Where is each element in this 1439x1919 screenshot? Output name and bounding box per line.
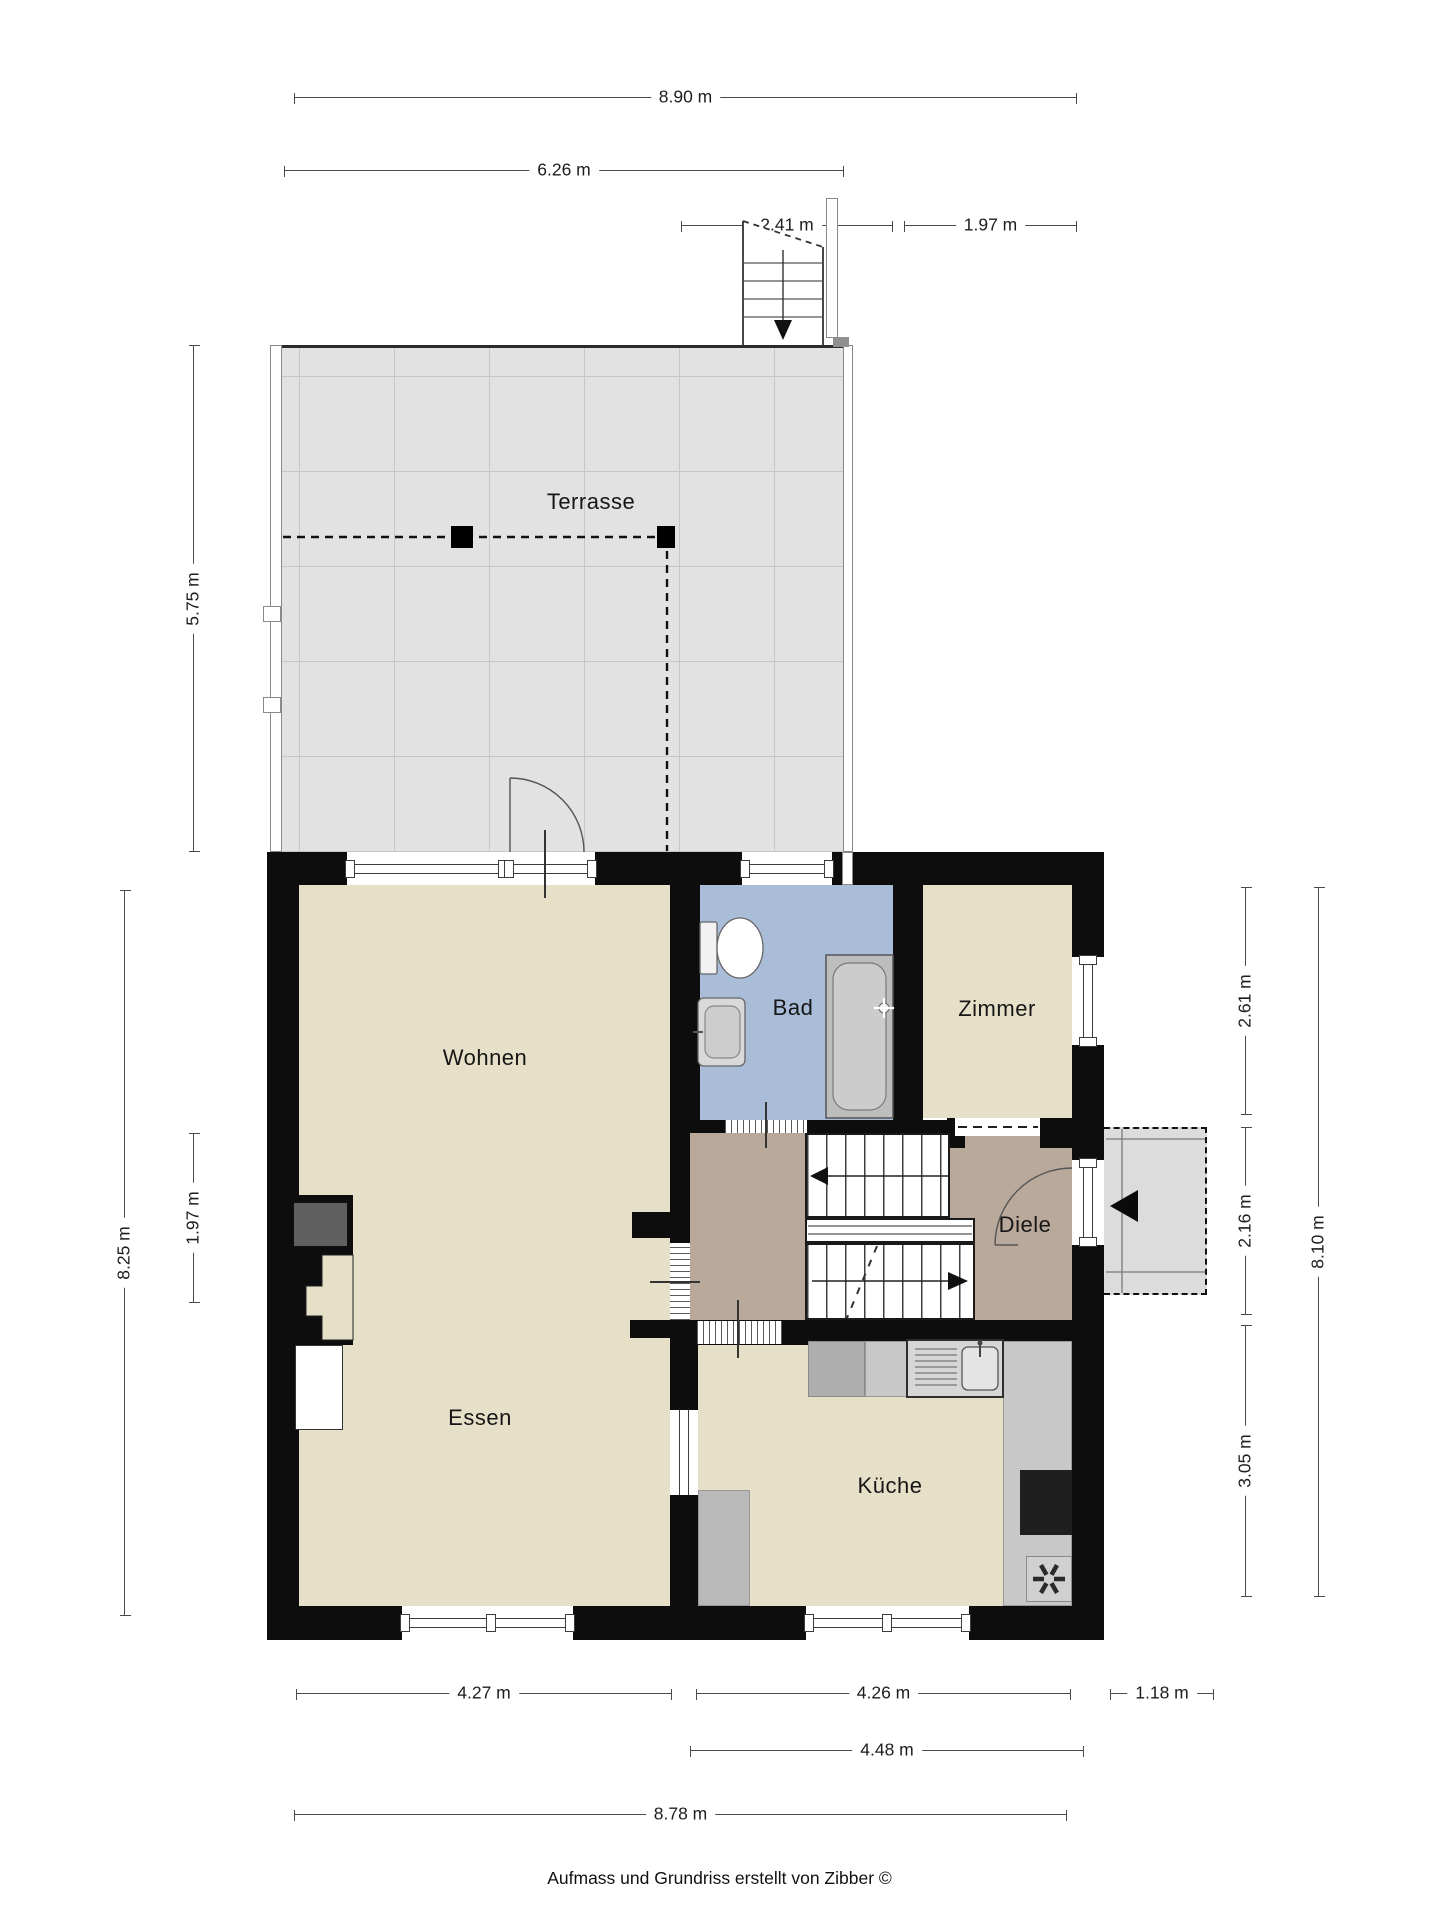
dim-top-terrace-label: 6.26 m: [529, 160, 599, 181]
wall-essen-hall: [670, 1132, 690, 1243]
wall-bottom: [267, 1606, 1104, 1640]
terrace-floor: [282, 345, 843, 852]
dim-top-overall: 8.90 m: [294, 97, 1077, 98]
dim-right-house-label: 8.10 m: [1308, 1207, 1329, 1277]
dim-left-terrace: 5.75 m: [193, 345, 194, 852]
dim-bottom-house-label: 8.78 m: [646, 1804, 716, 1825]
dim-bottom-kitchen-total-label: 4.48 m: [852, 1740, 922, 1761]
terrace-railing-post: [263, 697, 281, 713]
window-wohnen-terrace: [347, 852, 506, 885]
terrace-railing-notch: [842, 852, 853, 885]
dim-bottom-kitchen-label: 4.26 m: [849, 1683, 919, 1704]
window-zimmer: [1072, 957, 1104, 1045]
room-label-bad: Bad: [773, 995, 814, 1021]
chimney-block: [293, 1202, 348, 1247]
dim-left-chimney: 1.97 m: [193, 1133, 194, 1303]
dim-left-terrace-label: 5.75 m: [183, 564, 204, 634]
entrance-porch: [1104, 1127, 1207, 1295]
dim-bottom-porch: 1.18 m: [1110, 1693, 1214, 1694]
dim-bottom-porch-label: 1.18 m: [1127, 1683, 1197, 1704]
fan-box: [1026, 1556, 1072, 1602]
footer-credit: Aufmass und Grundriss erstellt von Zibbe…: [0, 1868, 1439, 1889]
room-diele-sliver: [965, 1136, 1040, 1150]
dim-left-chimney-label: 1.97 m: [183, 1183, 204, 1253]
dim-top-overall-label: 8.90 m: [651, 87, 721, 108]
terrace-railing-right: [843, 345, 853, 852]
dim-right-entrance: 2.16 m: [1245, 1127, 1246, 1315]
stairs-landing: [805, 1218, 975, 1243]
dim-left-house: 8.25 m: [124, 890, 125, 1616]
exterior-stair-wall: [826, 198, 838, 338]
stairs-down-arrow-icon: [774, 320, 792, 340]
dim-bottom-living-label: 4.27 m: [449, 1683, 519, 1704]
exterior-stairs-icon: [743, 221, 823, 345]
room-label-diele: Diele: [999, 1212, 1052, 1238]
dim-bottom-kitchen: 4.26 m: [696, 1693, 1071, 1694]
sliding-door-zimmer: [955, 1118, 1040, 1136]
door-opening-kueche: [697, 1321, 782, 1344]
wall-stub-hall: [632, 1212, 670, 1238]
wall-stub-essen: [630, 1320, 670, 1338]
stairs-lower-flight: [805, 1243, 975, 1320]
dim-right-entrance-label: 2.16 m: [1235, 1186, 1256, 1256]
dim-bottom-living: 4.27 m: [296, 1693, 672, 1694]
dim-left-house-label: 8.25 m: [114, 1218, 135, 1288]
room-label-essen: Essen: [448, 1405, 512, 1431]
room-label-wohnen: Wohnen: [443, 1045, 528, 1071]
terrace-railing-post: [263, 606, 281, 622]
dim-right-zimmer: 2.61 m: [1245, 887, 1246, 1115]
window-kueche: [806, 1606, 969, 1640]
dim-bottom-kitchen-total: 4.48 m: [690, 1750, 1084, 1751]
dim-right-kitchen: 3.05 m: [1245, 1325, 1246, 1597]
wall-bad-zimmer: [893, 885, 923, 1120]
dim-top-stairs: 2.41 m: [681, 225, 893, 226]
kitchen-counter-mid: [865, 1341, 907, 1397]
dim-top-stairs-label: 2.41 m: [752, 215, 822, 236]
window-bad: [742, 852, 832, 885]
dim-top-stairs-side-label: 1.97 m: [956, 215, 1026, 236]
dim-right-zimmer-label: 2.61 m: [1235, 966, 1256, 1036]
room-label-kueche: Küche: [858, 1473, 923, 1499]
door-opening-essen-hall: [670, 1243, 690, 1320]
floor-plan: 8.90 m 6.26 m 2.41 m 1.97 m 5.75 m 8.25 …: [0, 0, 1439, 1919]
kitchen-block-left: [698, 1490, 750, 1606]
door-opening-bad: [725, 1120, 807, 1133]
door-entrance: [1072, 1160, 1104, 1245]
dim-top-terrace: 6.26 m: [284, 170, 844, 171]
dim-right-kitchen-label: 3.05 m: [1235, 1426, 1256, 1496]
window-essen-kueche: [670, 1410, 698, 1495]
door-terrace: [506, 852, 595, 885]
exterior-stair-wall-foot: [833, 337, 849, 347]
terrace-railing-left: [270, 345, 282, 852]
dim-right-house: 8.10 m: [1318, 887, 1319, 1597]
room-label-zimmer: Zimmer: [958, 996, 1036, 1022]
room-wohnen-essen: [299, 885, 670, 1606]
wall-bad-bottom: [670, 1120, 965, 1133]
wall-zimmer-bottom-right: [1040, 1118, 1072, 1148]
cooktop-icon: [1020, 1470, 1072, 1535]
window-essen: [402, 1606, 573, 1640]
chimney-niche-white: [295, 1345, 343, 1430]
room-label-terrasse: Terrasse: [547, 489, 635, 515]
stairs-upper-flight: [805, 1133, 950, 1218]
wall-wohnen-bad: [670, 885, 700, 1120]
kitchen-counter-left: [808, 1341, 865, 1397]
dim-bottom-house: 8.78 m: [294, 1814, 1067, 1815]
dim-top-stairs-side: 1.97 m: [904, 225, 1077, 226]
